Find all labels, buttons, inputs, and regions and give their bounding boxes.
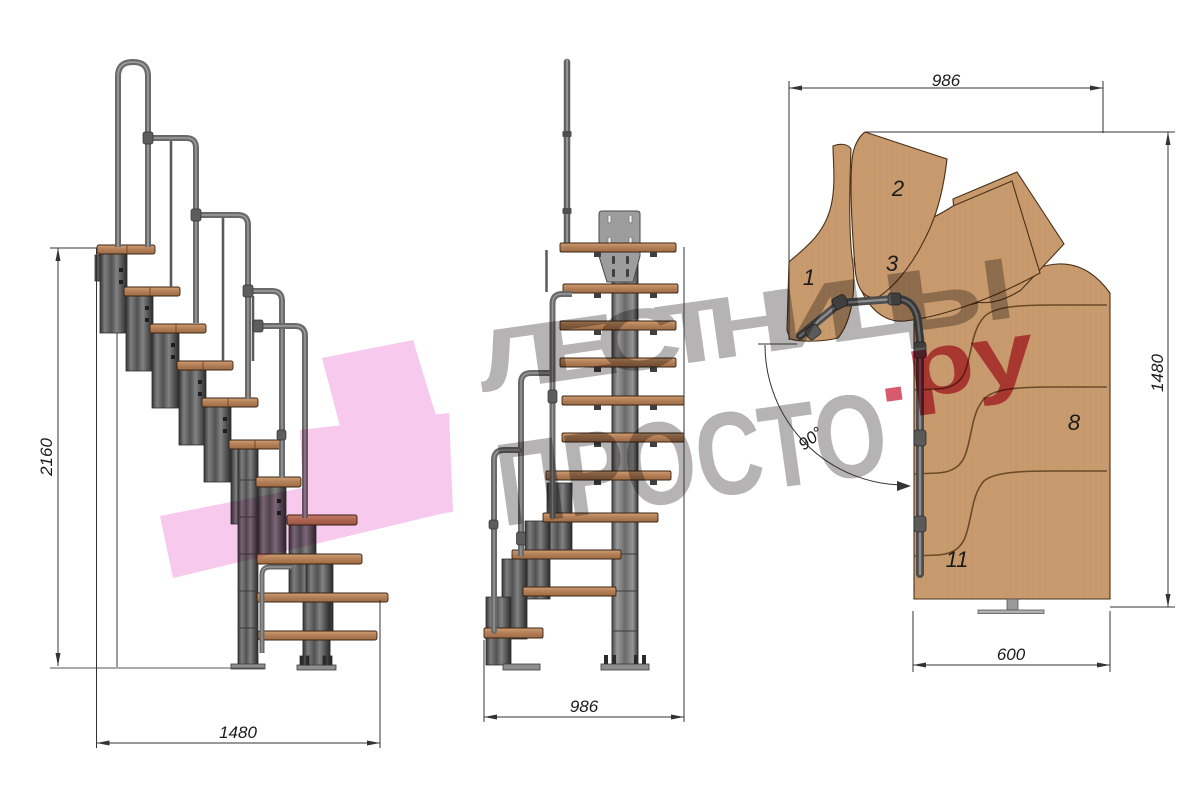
svg-text:1480: 1480 (1148, 354, 1167, 392)
svg-text:2160: 2160 (37, 438, 56, 477)
svg-text:11: 11 (946, 547, 969, 572)
svg-text:600: 600 (997, 645, 1026, 664)
svg-text:1480: 1480 (219, 723, 257, 742)
svg-text:986: 986 (570, 697, 599, 716)
svg-text:2: 2 (891, 176, 904, 201)
svg-text:8: 8 (1068, 410, 1081, 435)
svg-text:986: 986 (932, 71, 961, 90)
